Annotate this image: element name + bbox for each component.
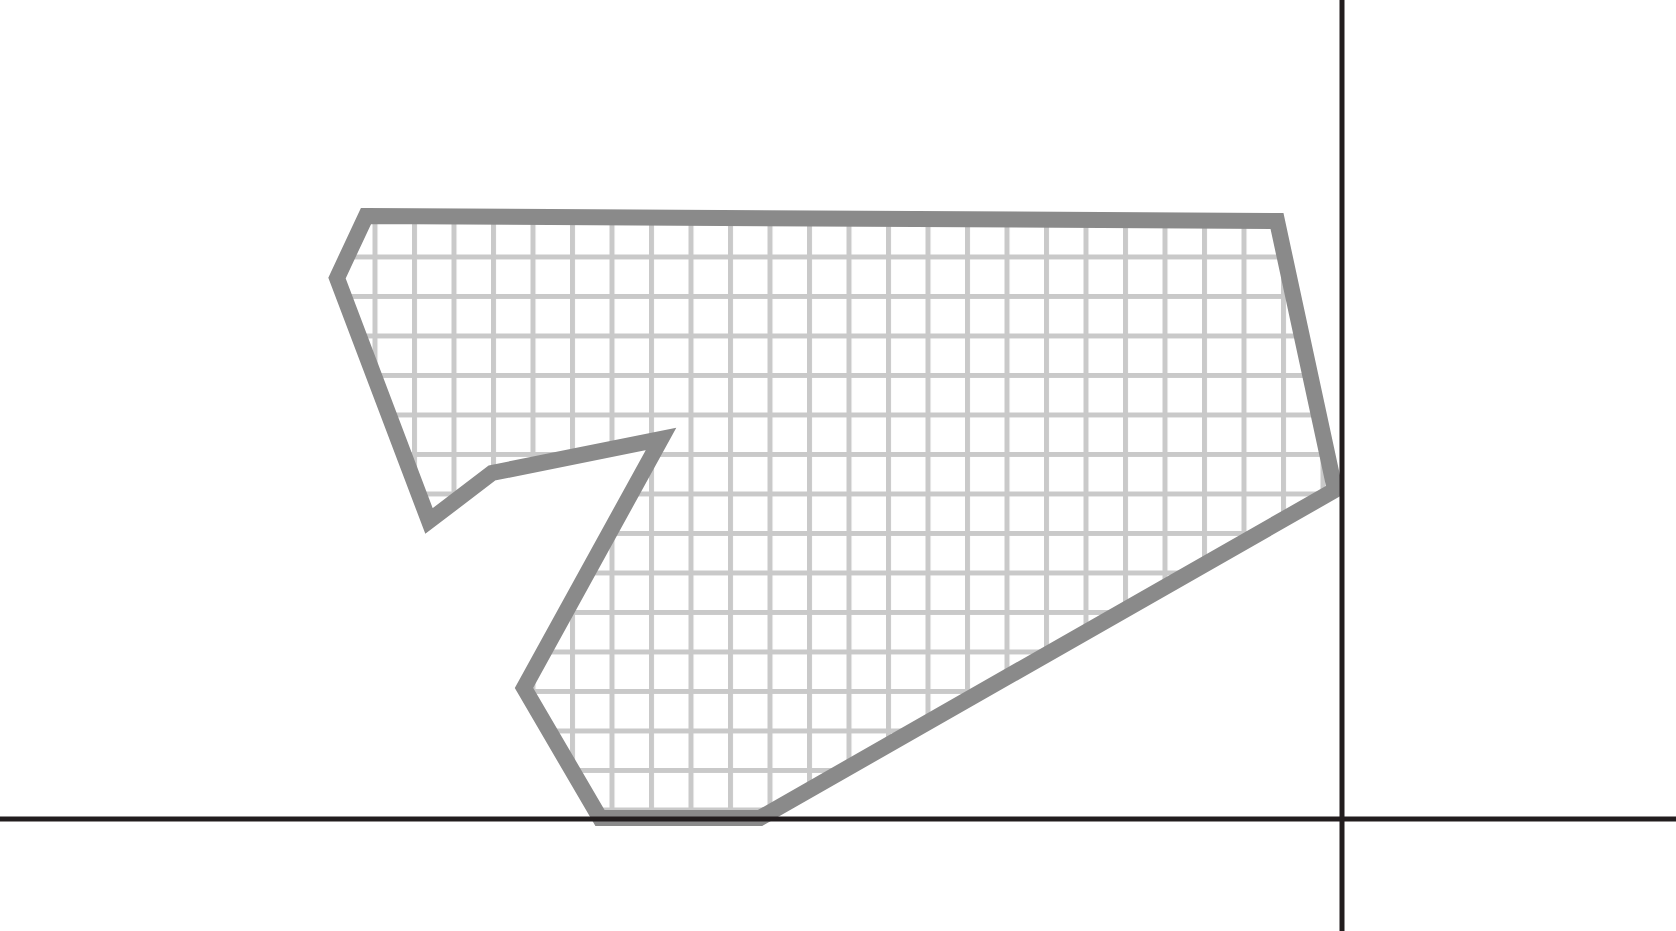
- figure-canvas: [0, 0, 1676, 931]
- coordinate-plane-figure: [0, 0, 1676, 931]
- hatched-polygon: [337, 216, 1335, 818]
